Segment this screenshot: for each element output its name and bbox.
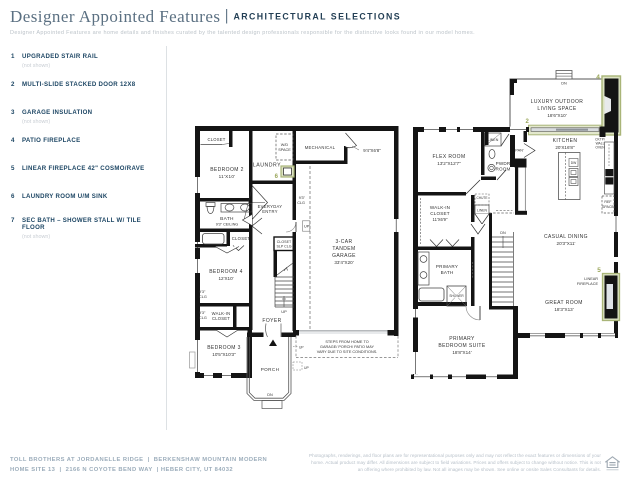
svg-text:BEDROOM SUITE: BEDROOM SUITE — [438, 343, 485, 349]
svg-text:13'2"X12'7": 13'2"X12'7" — [437, 161, 461, 166]
svg-text:SLP CLG: SLP CLG — [276, 245, 291, 249]
svg-text:2: 2 — [526, 119, 530, 125]
svg-text:REF: REF — [604, 200, 612, 204]
svg-text:9'4"X6'8": 9'4"X6'8" — [363, 148, 381, 153]
svg-text:18'8"X14': 18'8"X14' — [452, 350, 471, 355]
svg-text:SPACE: SPACE — [278, 148, 291, 152]
svg-text:6: 6 — [275, 174, 279, 180]
svg-text:5: 5 — [597, 267, 601, 274]
svg-text:PORCH: PORCH — [261, 367, 280, 372]
svg-text:CLOSET: CLOSET — [208, 137, 226, 142]
svg-text:TANDEM: TANDEM — [332, 246, 355, 252]
svg-text:CASUAL DINING: CASUAL DINING — [544, 234, 588, 240]
svg-text:SPACE: SPACE — [602, 205, 615, 209]
svg-text:WALK-IN: WALK-IN — [430, 205, 450, 210]
svg-text:ROOM: ROOM — [495, 167, 510, 172]
svg-text:DW: DW — [571, 161, 577, 165]
svg-text:CLG: CLG — [199, 295, 207, 299]
svg-text:4: 4 — [596, 74, 600, 81]
svg-text:CHUTE: CHUTE — [477, 196, 488, 200]
svg-text:CLG: CLG — [199, 316, 207, 320]
svg-text:18'6"X10': 18'6"X10' — [547, 113, 566, 118]
svg-text:LIVING SPACE: LIVING SPACE — [537, 106, 576, 112]
svg-text:VARY DUE TO SITE CONDITIONS.: VARY DUE TO SITE CONDITIONS. — [317, 350, 378, 354]
svg-text:KITCHEN: KITCHEN — [553, 138, 578, 144]
svg-text:CLOSET: CLOSET — [232, 236, 251, 241]
svg-text:33'4"X20': 33'4"X20' — [334, 260, 353, 265]
svg-text:UP: UP — [304, 366, 309, 370]
svg-text:BEDROOM 2: BEDROOM 2 — [210, 167, 244, 173]
svg-text:LINEN: LINEN — [477, 209, 488, 213]
svg-text:UP: UP — [281, 309, 287, 314]
svg-text:20'X16'8": 20'X16'8" — [555, 145, 575, 150]
svg-text:LINEAR: LINEAR — [584, 277, 598, 281]
svg-text:CLOSET: CLOSET — [212, 316, 230, 321]
svg-text:3-CAR: 3-CAR — [335, 239, 352, 245]
svg-text:GARAGE/ PORCH/ PATIO MAY: GARAGE/ PORCH/ PATIO MAY — [320, 345, 374, 349]
svg-text:CLG: CLG — [297, 201, 305, 205]
svg-text:SHOWER: SHOWER — [449, 294, 464, 298]
svg-text:BATH: BATH — [220, 216, 234, 222]
svg-text:BATH: BATH — [441, 270, 454, 275]
svg-text:LINEN: LINEN — [488, 138, 499, 142]
svg-text:DN: DN — [267, 393, 273, 397]
svg-text:DN: DN — [500, 231, 506, 235]
svg-text:LAUNDRY: LAUNDRY — [253, 163, 281, 169]
svg-text:LUXURY OUTDOOR: LUXURY OUTDOOR — [531, 99, 584, 105]
svg-text:DN: DN — [561, 82, 567, 86]
svg-text:STEPS FROM HOME TO: STEPS FROM HOME TO — [325, 340, 368, 344]
svg-text:OVEN: OVEN — [595, 146, 605, 150]
svg-text:BEDROOM 3: BEDROOM 3 — [207, 345, 241, 351]
svg-text:FOYER: FOYER — [262, 318, 281, 324]
svg-text:PWDR: PWDR — [496, 161, 511, 166]
svg-text:PRIMARY: PRIMARY — [449, 336, 475, 342]
svg-text:20'3"X11': 20'3"X11' — [557, 241, 576, 246]
svg-text:ENTRY: ENTRY — [262, 209, 278, 214]
svg-text:W/D: W/D — [281, 143, 289, 147]
svg-text:CLOSET: CLOSET — [277, 240, 292, 244]
svg-text:PRIMARY: PRIMARY — [436, 264, 458, 269]
svg-text:18'3"X13': 18'3"X13' — [554, 307, 573, 312]
svg-text:UP: UP — [304, 225, 310, 229]
svg-text:MECHANICAL: MECHANICAL — [305, 145, 336, 150]
svg-text:11'X6'9": 11'X6'9" — [433, 217, 448, 222]
svg-text:GREAT ROOM: GREAT ROOM — [545, 300, 583, 306]
svg-text:UP: UP — [299, 346, 304, 350]
svg-text:11'X10': 11'X10' — [219, 174, 236, 179]
svg-text:10'5"X10'3": 10'5"X10'3" — [212, 352, 236, 357]
svg-text:9'3": 9'3" — [199, 290, 206, 294]
svg-text:12'X10': 12'X10' — [218, 276, 233, 281]
svg-text:GARAGE: GARAGE — [332, 253, 356, 259]
svg-text:FLEX ROOM: FLEX ROOM — [432, 154, 465, 160]
svg-text:9'3" CEILING: 9'3" CEILING — [216, 223, 239, 227]
svg-text:BEDROOM 4: BEDROOM 4 — [209, 269, 243, 275]
svg-text:FIREPLACE: FIREPLACE — [577, 282, 599, 286]
svg-text:CLOSET: CLOSET — [430, 211, 450, 216]
svg-text:9'3": 9'3" — [199, 311, 206, 315]
svg-text:9'3": 9'3" — [299, 196, 306, 200]
